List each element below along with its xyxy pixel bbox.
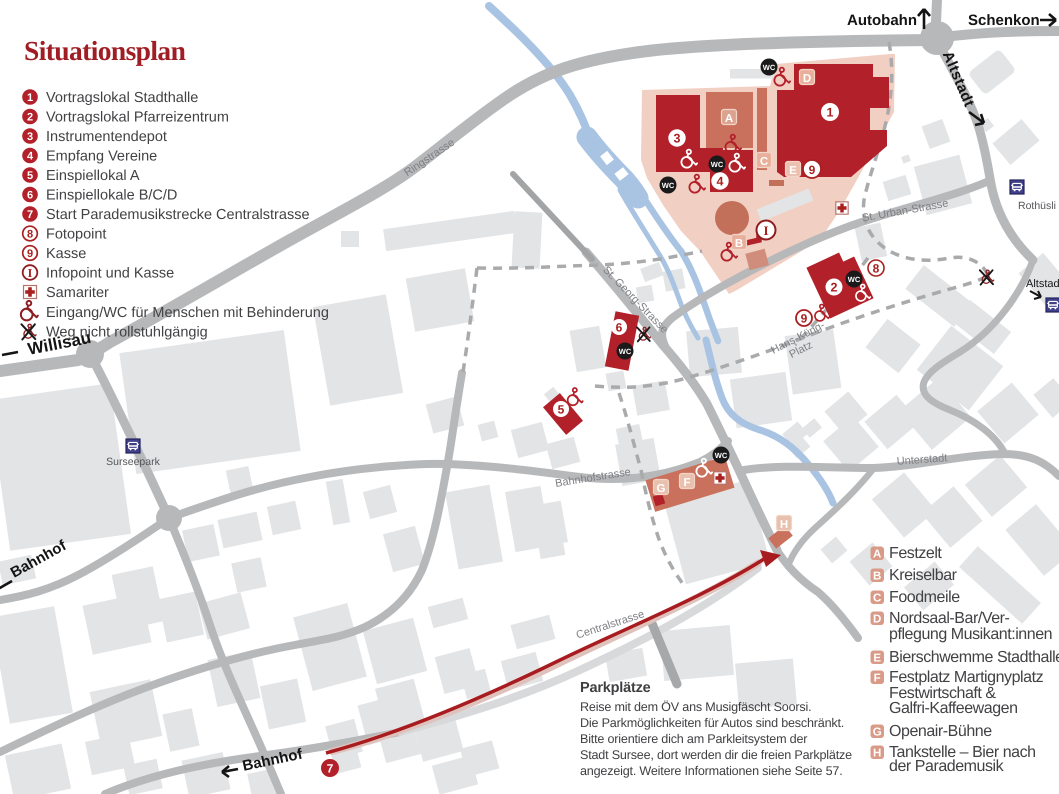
svg-text:A: A <box>873 549 881 561</box>
svg-text:Surseepark: Surseepark <box>106 456 160 468</box>
svg-text:I: I <box>28 266 33 280</box>
svg-text:Samariter: Samariter <box>46 285 109 301</box>
svg-text:Bitte orientiere dich am Parkl: Bitte orientiere dich am Parkleitsystem … <box>580 732 807 746</box>
svg-text:C: C <box>873 593 881 605</box>
svg-text:B: B <box>735 238 743 250</box>
svg-text:3: 3 <box>27 131 33 143</box>
svg-text:1: 1 <box>827 106 834 120</box>
svg-text:Galfri-Kaffeewagen: Galfri-Kaffeewagen <box>889 700 1018 717</box>
svg-text:G: G <box>873 727 882 739</box>
svg-text:9: 9 <box>809 163 816 177</box>
svg-text:Fotopoint: Fotopoint <box>46 227 106 243</box>
svg-text:angezeigt. Weitere Information: angezeigt. Weitere Informationen siehe S… <box>580 764 843 778</box>
svg-text:8: 8 <box>873 262 880 276</box>
svg-text:B: B <box>873 571 881 583</box>
svg-text:H: H <box>873 748 881 760</box>
svg-text:Kasse: Kasse <box>46 246 86 262</box>
svg-text:6: 6 <box>616 321 623 335</box>
svg-text:Infopoint und Kasse: Infopoint und Kasse <box>46 266 174 282</box>
svg-text:8: 8 <box>27 229 33 241</box>
svg-text:Autobahn: Autobahn <box>847 12 917 29</box>
svg-text:Empfang Vereine: Empfang Vereine <box>46 149 157 165</box>
svg-text:pflegung Musikant:innen: pflegung Musikant:innen <box>889 626 1052 643</box>
svg-text:Openair-Bühne: Openair-Bühne <box>889 723 992 740</box>
svg-text:Start Parademusikstrecke Centr: Start Parademusikstrecke Centralstrasse <box>46 207 310 223</box>
svg-text:E: E <box>789 165 797 177</box>
svg-text:F: F <box>874 673 881 685</box>
svg-text:Parkplätze: Parkplätze <box>580 680 651 696</box>
svg-text:2: 2 <box>831 281 838 295</box>
svg-text:Vortragslokal Stadthalle: Vortragslokal Stadthalle <box>46 90 198 106</box>
svg-text:A: A <box>725 113 733 125</box>
svg-text:Vortragslokal Pfarreizentrum: Vortragslokal Pfarreizentrum <box>46 110 229 126</box>
svg-text:G: G <box>657 483 666 495</box>
svg-text:Schenkon: Schenkon <box>968 12 1040 29</box>
svg-text:WC: WC <box>848 275 861 284</box>
svg-text:Nordsaal-Bar/Ver-: Nordsaal-Bar/Ver- <box>889 610 1010 627</box>
svg-text:der Parademusik: der Parademusik <box>889 758 1005 775</box>
svg-text:Eingang/WC für Menschen mit Be: Eingang/WC für Menschen mit Behinderung <box>46 305 329 321</box>
svg-text:6: 6 <box>27 190 33 202</box>
svg-text:WC: WC <box>715 451 728 460</box>
svg-text:Instrumentendepot: Instrumentendepot <box>46 129 167 145</box>
svg-text:Die Parkmöglichkeiten für Auto: Die Parkmöglichkeiten für Autos sind bes… <box>580 716 844 730</box>
svg-text:Reise mit dem ÖV ans Musigfäsc: Reise mit dem ÖV ans Musigfäscht Soorsi. <box>580 700 811 714</box>
svg-text:1: 1 <box>27 92 33 104</box>
svg-text:7: 7 <box>327 762 334 776</box>
svg-text:D: D <box>873 614 881 626</box>
svg-text:E: E <box>873 653 881 665</box>
svg-text:H: H <box>780 519 788 531</box>
svg-text:Bierschwemme Stadthalle: Bierschwemme Stadthalle <box>889 649 1059 666</box>
svg-text:7: 7 <box>27 209 33 221</box>
svg-text:5: 5 <box>27 170 33 182</box>
svg-text:2: 2 <box>27 112 33 124</box>
svg-text:I: I <box>763 223 768 238</box>
svg-text:F: F <box>683 477 690 489</box>
svg-text:4: 4 <box>717 175 724 189</box>
svg-text:D: D <box>803 73 811 85</box>
svg-text:5: 5 <box>558 403 565 417</box>
svg-text:9: 9 <box>801 312 808 326</box>
svg-text:Rothüsli: Rothüsli <box>1018 200 1056 212</box>
svg-text:Festplatz Martignyplatz: Festplatz Martignyplatz <box>889 669 1044 686</box>
svg-text:4: 4 <box>27 151 34 163</box>
svg-text:C: C <box>760 156 768 168</box>
svg-text:WC: WC <box>662 181 675 190</box>
svg-text:Altstadt: Altstadt <box>1026 278 1059 290</box>
svg-text:Foodmeile: Foodmeile <box>889 589 960 606</box>
svg-text:9: 9 <box>27 248 33 260</box>
svg-text:WC: WC <box>711 160 724 169</box>
svg-text:3: 3 <box>674 132 681 146</box>
svg-text:Stadt Sursee, dort werden dir: Stadt Sursee, dort werden dir die freien… <box>580 748 852 762</box>
svg-text:Festzelt: Festzelt <box>889 545 942 562</box>
svg-text:Einspiellokale B/C/D: Einspiellokale B/C/D <box>46 188 177 204</box>
svg-text:Einspiellokal A: Einspiellokal A <box>46 168 140 184</box>
svg-text:WC: WC <box>763 63 776 72</box>
svg-text:Kreiselbar: Kreiselbar <box>889 567 958 584</box>
svg-text:WC: WC <box>619 347 632 356</box>
svg-text:Weg nicht rollstuhlgängig: Weg nicht rollstuhlgängig <box>46 325 208 341</box>
svg-text:Situationsplan: Situationsplan <box>24 35 186 66</box>
